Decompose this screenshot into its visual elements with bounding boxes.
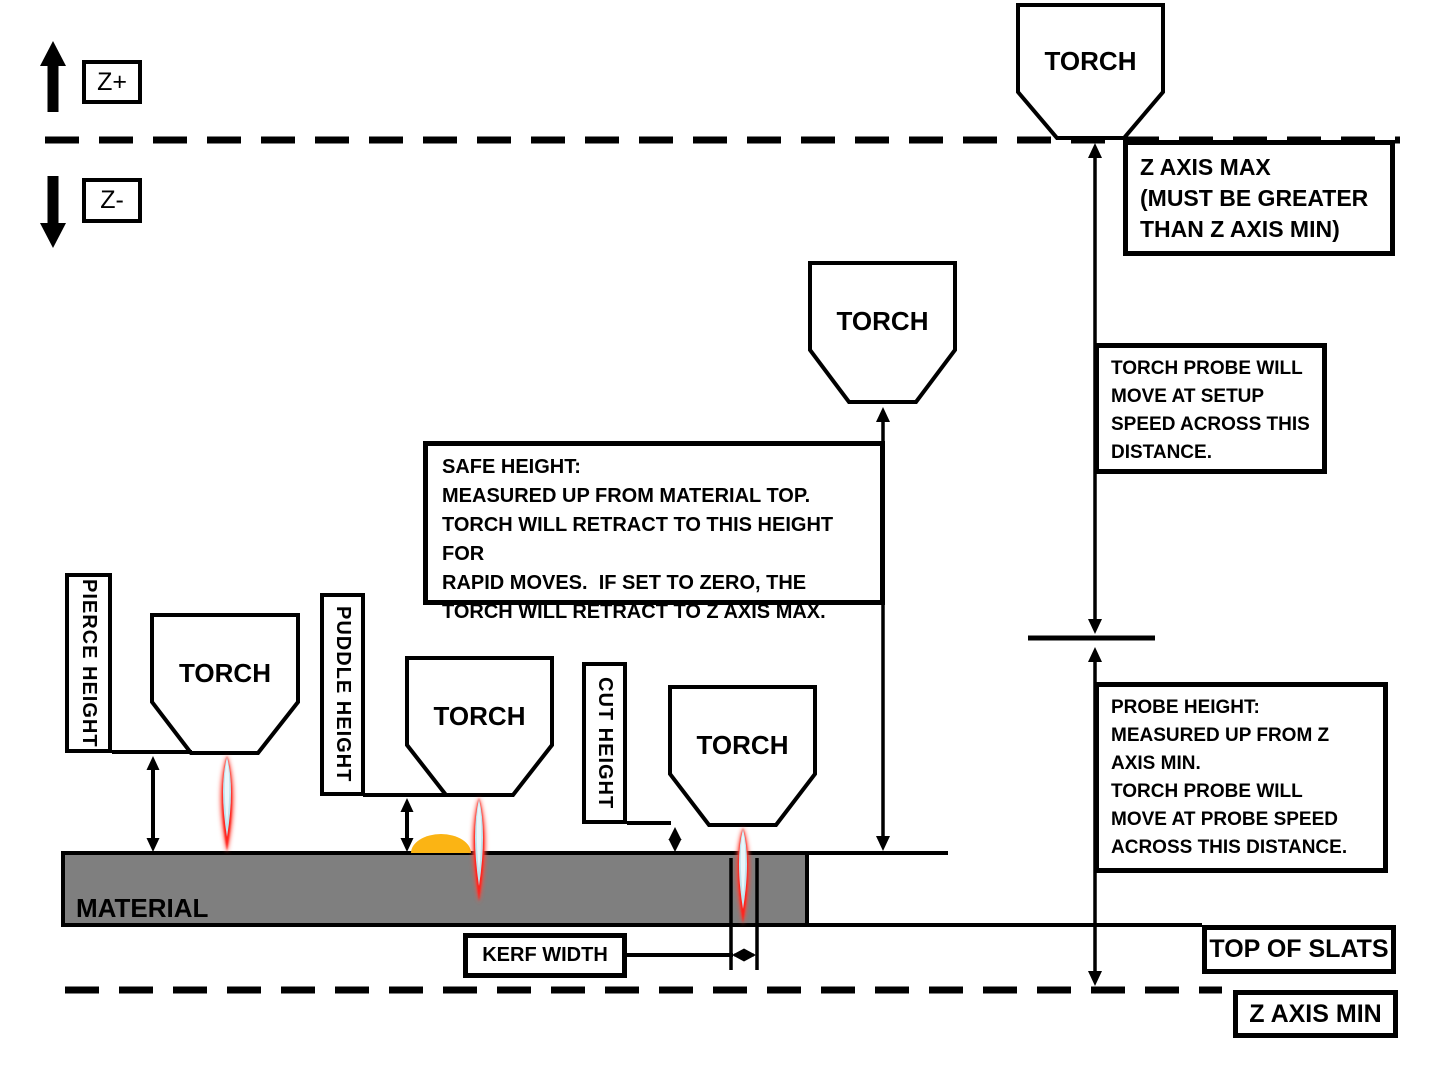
plasma-flame-pierce [221,755,234,853]
material-label: MATERIAL [76,893,208,924]
z-minus-arrow-icon [40,176,66,248]
torch-height-diagram: Z+ Z- TORCH TORCH TORCH TORCH TORCH Z AX… [0,0,1436,1078]
z-minus-label-box: Z- [82,178,142,223]
z-plus-arrow-icon [40,41,66,112]
safe-height-callout: SAFE HEIGHT: MEASURED UP FROM MATERIAL T… [423,441,885,605]
z-minus-label: Z- [100,186,124,215]
torch-label-puddle-height: TORCH [407,701,552,731]
setup-speed-callout: TORCH PROBE WILL MOVE AT SETUP SPEED ACR… [1094,343,1327,474]
puddle-shape [411,834,471,853]
puddle-height-arrow [401,798,414,852]
z-plus-label: Z+ [97,68,127,97]
torch-label-z-axis-max: TORCH [1018,46,1163,76]
torch-label-cut-height: TORCH [670,730,815,760]
pierce-height-label-box: PIERCE HEIGHT [65,573,112,753]
kerf-width-label-box: KERF WIDTH [463,933,627,978]
kerf-width-arrow [732,949,756,962]
cut-height-label-box: CUT HEIGHT [582,662,627,824]
torch-label-safe-height: TORCH [810,306,955,336]
top-of-slats-label-box: TOP OF SLATS [1202,925,1396,974]
z-plus-label-box: Z+ [82,60,142,104]
z-axis-min-label-box: Z AXIS MIN [1233,990,1398,1038]
pierce-height-arrow [147,756,160,852]
puddle-height-label-box: PUDDLE HEIGHT [320,593,365,796]
torch-label-pierce-height: TORCH [152,658,298,688]
z-axis-max-callout: Z AXIS MAX (MUST BE GREATER THAN Z AXIS … [1123,140,1395,256]
cut-height-arrow [669,827,682,852]
probe-height-callout: PROBE HEIGHT: MEASURED UP FROM Z AXIS MI… [1094,682,1388,873]
